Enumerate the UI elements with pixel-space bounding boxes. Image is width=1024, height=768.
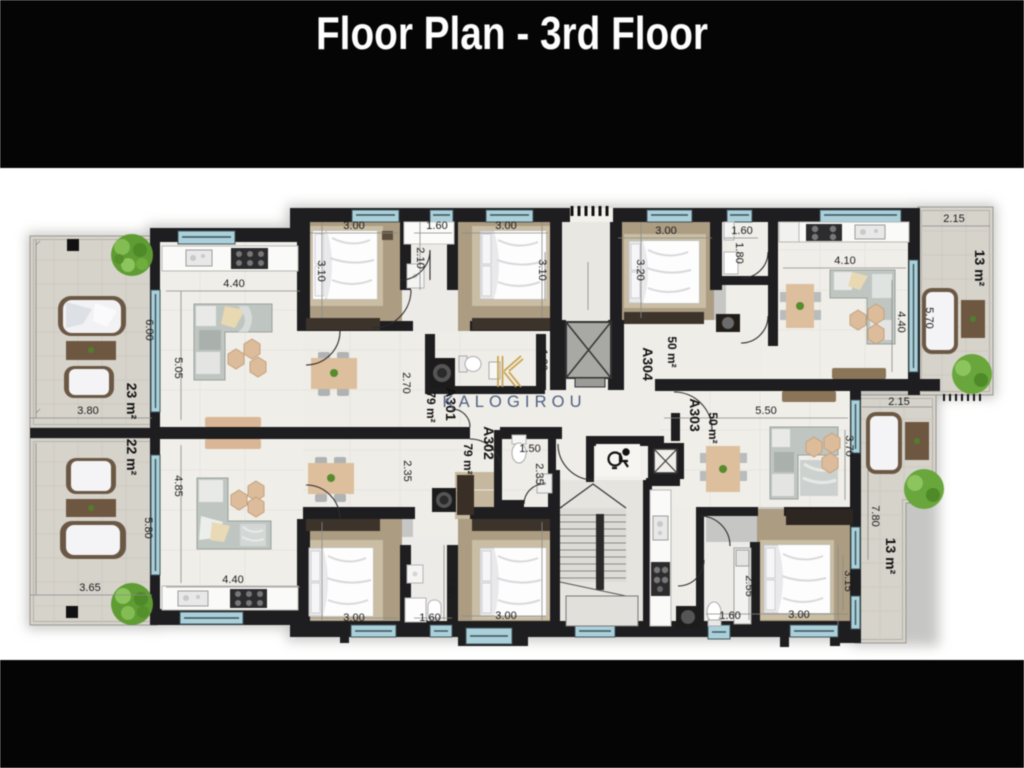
- svg-text:5.05: 5.05: [172, 357, 184, 378]
- svg-text:50 m²: 50 m²: [665, 336, 679, 367]
- svg-text:3.10: 3.10: [536, 259, 548, 280]
- svg-text:2.35: 2.35: [401, 460, 413, 481]
- svg-text:6.00: 6.00: [143, 319, 155, 340]
- svg-text:3.00: 3.00: [788, 609, 809, 621]
- svg-text:5.80: 5.80: [142, 517, 154, 538]
- svg-text:13 m²: 13 m²: [972, 250, 988, 287]
- svg-text:1.60: 1.60: [419, 612, 440, 624]
- svg-text:2.15: 2.15: [888, 396, 909, 408]
- svg-text:50 m²: 50 m²: [706, 412, 720, 443]
- svg-text:5.70: 5.70: [923, 307, 935, 328]
- svg-text:3.80: 3.80: [77, 405, 98, 417]
- svg-text:3.65: 3.65: [79, 582, 100, 594]
- svg-text:3.00: 3.00: [343, 220, 364, 232]
- svg-text:2.70: 2.70: [400, 372, 412, 393]
- svg-text:2.10: 2.10: [414, 247, 426, 268]
- svg-text:23 m²: 23 m²: [124, 383, 140, 420]
- svg-text:79 m²: 79 m²: [461, 443, 475, 474]
- svg-text:4.40: 4.40: [223, 278, 244, 290]
- svg-text:79 m²: 79 m²: [424, 391, 438, 422]
- svg-text:4.85: 4.85: [172, 475, 184, 496]
- svg-text:22 m²: 22 m²: [124, 439, 140, 476]
- svg-text:A303: A303: [687, 398, 703, 432]
- svg-text:1.80: 1.80: [733, 242, 745, 263]
- svg-text:3.00: 3.00: [655, 225, 676, 237]
- svg-text:1.60: 1.60: [426, 220, 447, 232]
- svg-text:2.55: 2.55: [743, 575, 755, 596]
- svg-text:7.80: 7.80: [869, 505, 881, 526]
- svg-text:1.20: 1.20: [537, 349, 549, 370]
- svg-text:A304: A304: [640, 347, 656, 381]
- svg-text:3.70: 3.70: [843, 435, 855, 456]
- svg-text:KALOGIROU: KALOGIROU: [443, 393, 582, 411]
- svg-text:3.00: 3.00: [495, 220, 516, 232]
- svg-text:1.60: 1.60: [719, 610, 740, 622]
- svg-text:4.40: 4.40: [895, 311, 907, 332]
- svg-text:5.50: 5.50: [755, 405, 776, 417]
- svg-text:4.40: 4.40: [222, 574, 243, 586]
- svg-text:Floor Plan - 3rd Floor: Floor Plan - 3rd Floor: [316, 7, 708, 59]
- svg-text:2.15: 2.15: [943, 213, 964, 225]
- svg-text:4.10: 4.10: [834, 255, 855, 267]
- svg-text:3.15: 3.15: [842, 570, 854, 591]
- svg-text:3.10: 3.10: [315, 260, 327, 281]
- svg-text:2.35: 2.35: [533, 463, 545, 484]
- svg-text:1.60: 1.60: [731, 225, 752, 237]
- svg-text:A302: A302: [481, 426, 497, 460]
- svg-text:3.00: 3.00: [495, 610, 516, 622]
- svg-text:3.00: 3.00: [343, 612, 364, 624]
- svg-text:2.40: 2.40: [444, 576, 456, 597]
- svg-text:3.20: 3.20: [634, 259, 646, 280]
- svg-text:1.50: 1.50: [519, 443, 540, 455]
- svg-text:13 m²: 13 m²: [883, 538, 899, 575]
